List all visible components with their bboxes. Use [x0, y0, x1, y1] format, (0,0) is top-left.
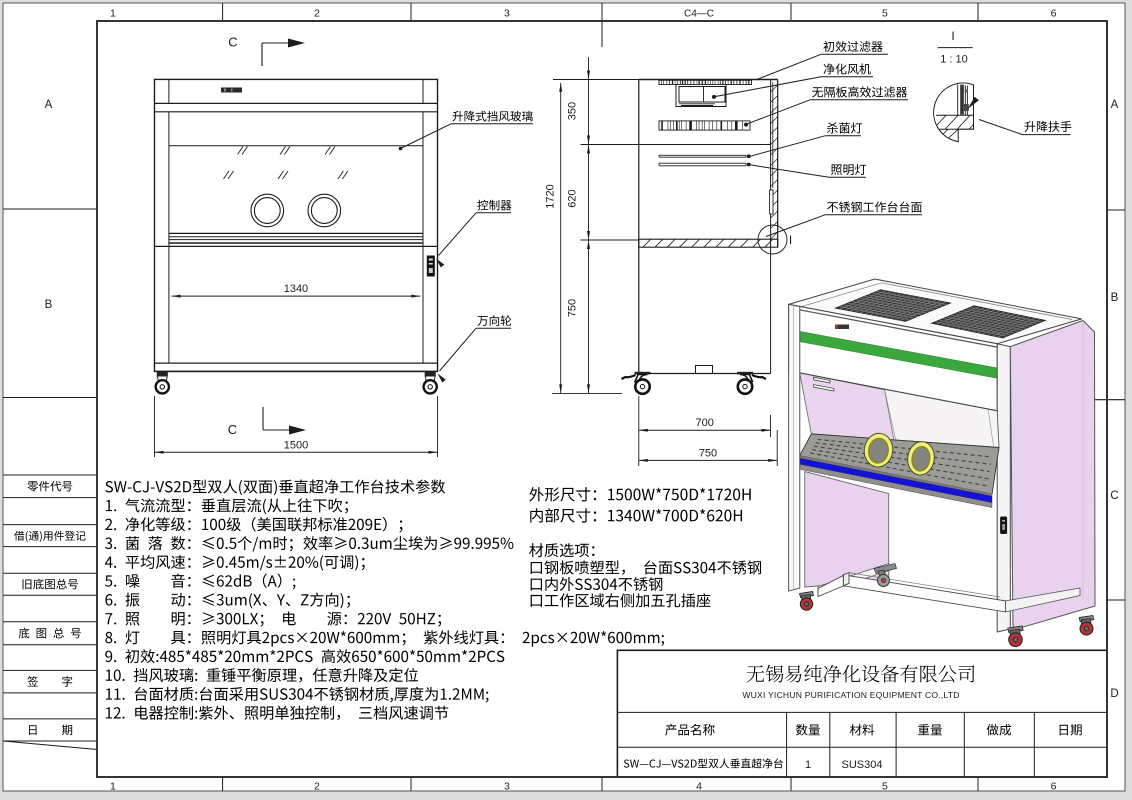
- svg-text:750: 750: [567, 299, 579, 317]
- svg-text:1 : 10: 1 : 10: [940, 54, 968, 66]
- svg-text:A: A: [45, 99, 53, 111]
- svg-text:B: B: [1111, 292, 1119, 304]
- svg-text:C: C: [228, 35, 237, 50]
- svg-text:2: 2: [314, 8, 320, 20]
- svg-text:I: I: [789, 233, 792, 247]
- svg-text:C: C: [1110, 490, 1118, 502]
- svg-text:620: 620: [567, 189, 579, 207]
- svg-text:5: 5: [882, 8, 888, 20]
- svg-text:700: 700: [695, 417, 713, 429]
- svg-text:3: 3: [504, 781, 510, 793]
- svg-text:2: 2: [314, 781, 320, 793]
- svg-text:1: 1: [805, 759, 811, 771]
- svg-text:1: 1: [110, 8, 116, 20]
- svg-text:1: 1: [110, 781, 116, 793]
- svg-text:750: 750: [699, 447, 717, 459]
- svg-text:350: 350: [567, 102, 579, 120]
- svg-text:WUXI YICHUN PURIFICATION EQUIP: WUXI YICHUN PURIFICATION EQUIPMENT CO.,L…: [742, 690, 959, 700]
- svg-text:C: C: [228, 422, 237, 437]
- svg-text:5: 5: [882, 781, 888, 793]
- svg-text:C4—C: C4—C: [684, 9, 714, 20]
- svg-text:3: 3: [504, 8, 510, 20]
- svg-text:I: I: [951, 29, 954, 43]
- svg-text:D: D: [1110, 688, 1118, 700]
- svg-text:4: 4: [696, 781, 702, 793]
- svg-text:B: B: [45, 299, 53, 311]
- svg-text:6: 6: [1051, 8, 1057, 20]
- svg-text:1340: 1340: [284, 283, 308, 295]
- svg-text:6: 6: [1051, 781, 1057, 793]
- svg-text:1500: 1500: [284, 439, 308, 451]
- svg-text:1720: 1720: [545, 184, 557, 208]
- svg-text:A: A: [1111, 99, 1119, 111]
- svg-text:SUS304: SUS304: [842, 759, 883, 771]
